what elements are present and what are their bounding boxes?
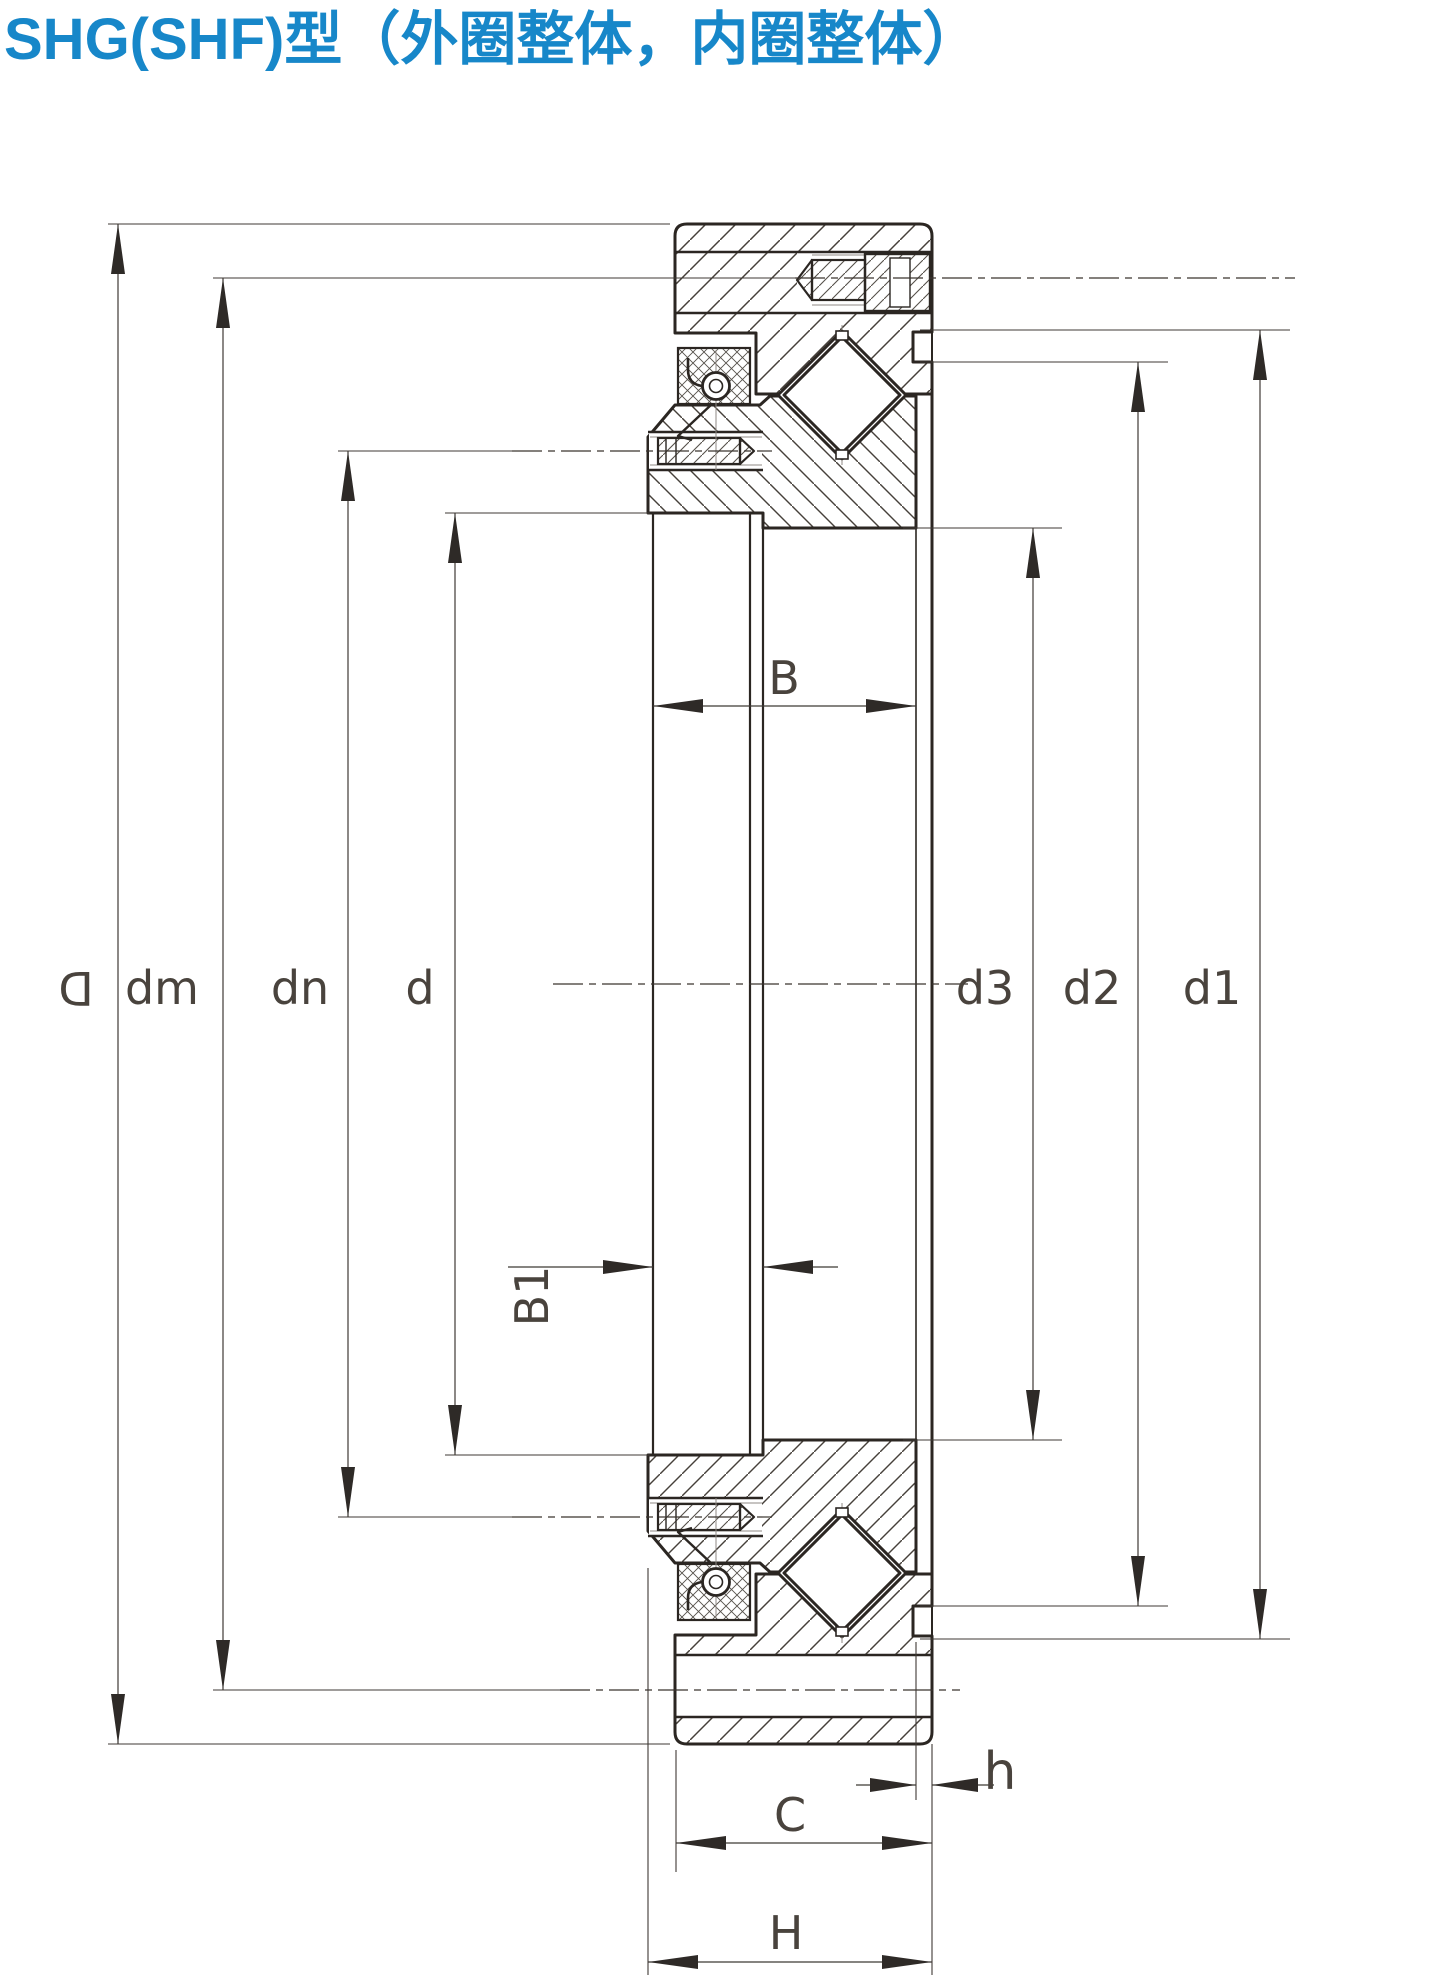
dim-D [111,224,125,1744]
dim-dm [216,278,230,1690]
outer-ring-bolt-hole-bottom [675,1655,932,1717]
dim-dn [341,451,355,1517]
dimension-labels: D dm dn d d3 d2 d1 B B1 C h H [58,651,1241,1960]
dim-label-H: H [769,1906,804,1960]
dim-label-d1: d1 [1183,961,1241,1015]
dim-label-B: B [768,651,800,705]
dim-label-B1: B1 [505,1266,559,1327]
dim-d1 [1253,330,1267,1639]
dim-label-dn: dn [271,961,329,1015]
dim-label-d2: d2 [1063,961,1121,1015]
dim-label-h: h [984,1742,1017,1802]
dim-d3 [1026,528,1040,1440]
dim-label-D: D [58,961,93,1015]
dim-label-dm: dm [125,961,199,1015]
page: SHG(SHF)型（外圈整体，内圈整体） [0,0,1443,1982]
technical-drawing: D dm dn d d3 d2 d1 B B1 C h H [0,0,1443,1982]
dim-label-d: d [405,961,434,1015]
dim-label-d3: d3 [956,961,1014,1015]
dim-h [856,1778,994,1792]
dim-d2 [1131,362,1145,1606]
dim-d [448,513,462,1455]
dim-label-C: C [774,1788,806,1842]
